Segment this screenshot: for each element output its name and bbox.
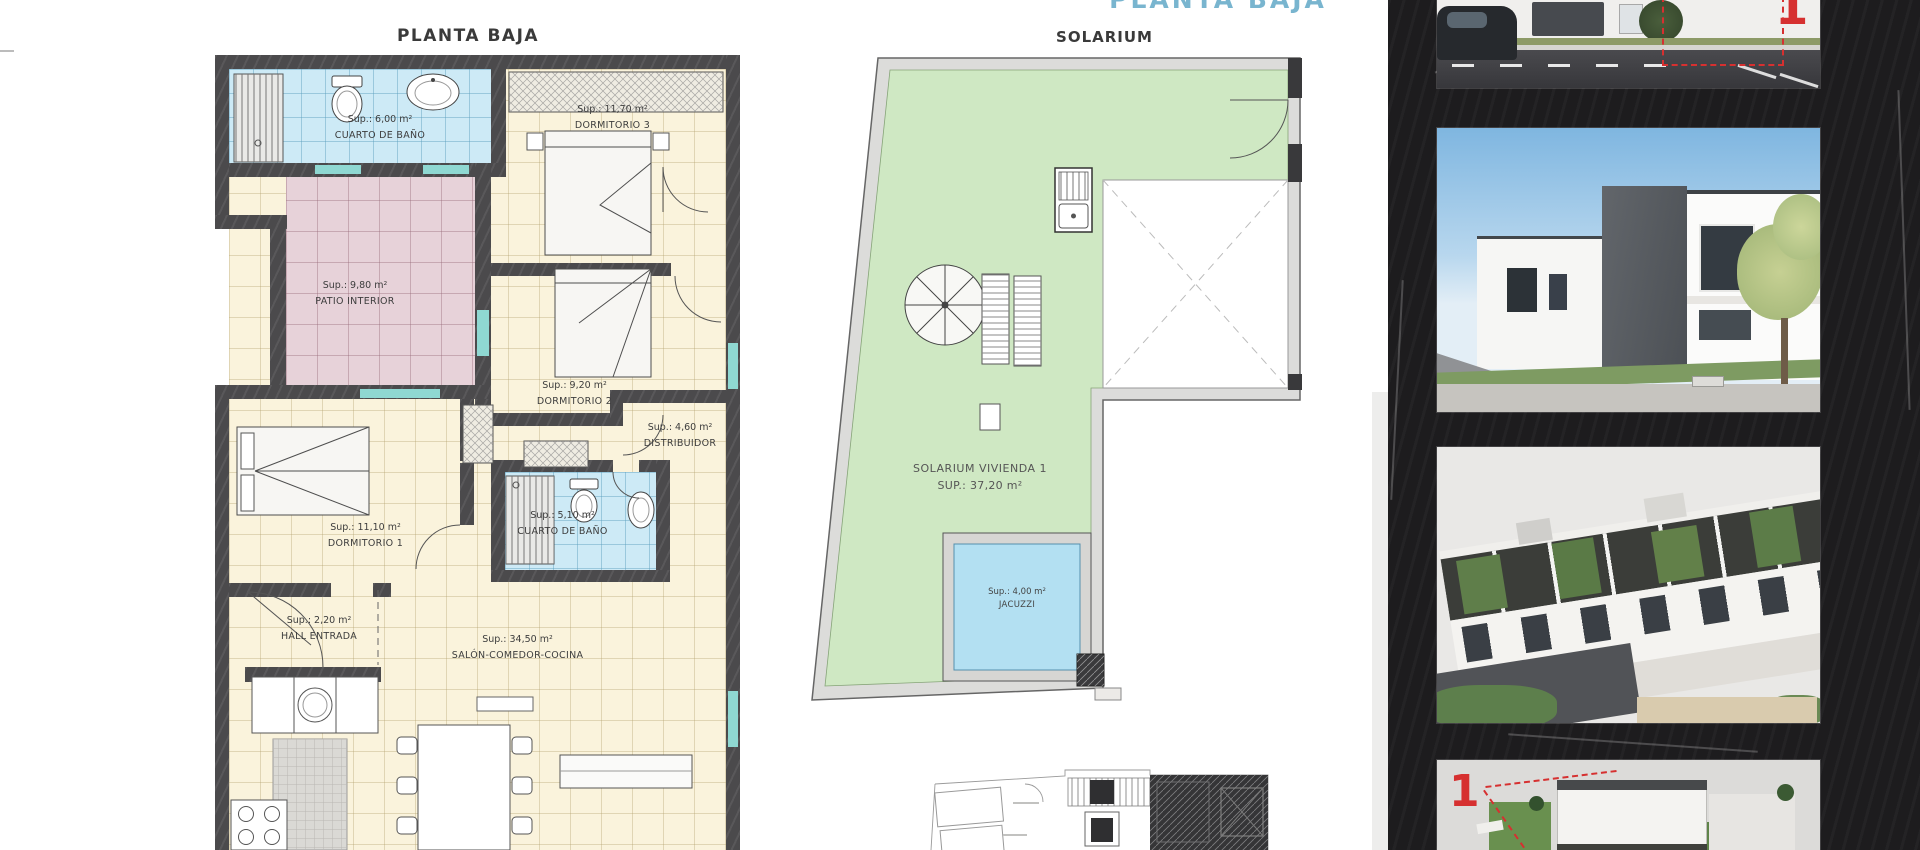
frame-scratch: [1508, 733, 1758, 752]
roof-edge: [1557, 780, 1707, 790]
page-edge-mark: [0, 50, 14, 52]
photo-street-facade[interactable]: 1: [1437, 0, 1820, 88]
frame-scratch: [1897, 90, 1910, 410]
room-label-bano-inferior: Sup.: 5,10 m² CUARTO DE BAÑO: [500, 511, 625, 536]
roof-shadow: [1557, 844, 1707, 850]
roof-garden: [1456, 554, 1508, 614]
roof-garden: [1552, 537, 1602, 599]
solarium-drawing: [800, 50, 1320, 720]
roof-void: [1103, 180, 1288, 388]
shower-icon: [234, 74, 283, 162]
planta-baja-title: PLANTA BAJA: [348, 26, 588, 46]
photo-sidebar: 1: [1388, 0, 1920, 850]
outdoor-sink-icon: [1055, 168, 1092, 232]
solarium-label: SOLARIUM VIVIENDA 1 SUP.: 37,20 m²: [885, 463, 1075, 491]
sidewalk: [1437, 384, 1820, 412]
photo-edge-strip: [1372, 392, 1388, 850]
photo-site-aerial[interactable]: 1: [1437, 760, 1820, 850]
stone-path: [1637, 697, 1817, 723]
side-table-icon: [980, 404, 1000, 430]
sofa-icon: [560, 755, 692, 788]
roof-garden: [1651, 525, 1705, 584]
room-label-dormitorio3: Sup.: 11,70 m² DORMITORIO 3: [545, 105, 680, 130]
bench: [1692, 376, 1724, 387]
room-label-salon: Sup.: 34,50 m² SALÓN-COMEDOR-COCINA: [415, 635, 620, 660]
window: [1699, 310, 1751, 340]
step: [1095, 688, 1121, 700]
sun-lounger-icon: [982, 274, 1009, 364]
hatched-block: [1150, 775, 1268, 850]
room-label-bano-superior: Sup.: 6,00 m² CUARTO DE BAÑO: [310, 115, 450, 140]
unit-number-badge: 1: [1775, 0, 1808, 32]
roof-wing: [1709, 794, 1795, 850]
room-label-distribuidor: Sup.: 4,60 m² DISTRIBUIDOR: [625, 423, 735, 448]
solarium-floorplan: SOLARIUM VIVIENDA 1 SUP.: 37,20 m² Sup.:…: [800, 50, 1320, 720]
sideboard-icon: [477, 697, 533, 711]
solarium-title: SOLARIUM: [982, 28, 1227, 46]
bed-icon: [527, 131, 669, 255]
washer-icon: [252, 677, 378, 733]
bed-icon: [237, 427, 369, 515]
key-plan-drawing: [925, 762, 1280, 850]
jacuzzi-label: Sup.: 4,00 m² JACUZZI: [953, 588, 1081, 609]
room-label-dormitorio2: Sup.: 9,20 m² DORMITORIO 2: [502, 381, 647, 406]
plant: [1777, 784, 1794, 801]
wardrobe-icon: [524, 441, 588, 467]
door-arc: [675, 276, 721, 322]
photo-rooftop-aerial[interactable]: [1437, 447, 1820, 723]
unit-number-badge: 1: [1449, 770, 1480, 814]
frame-scratch: [1390, 280, 1404, 500]
lane-dashes: [1452, 64, 1682, 67]
service-hatch: [1077, 654, 1104, 686]
key-plan-rooms: [935, 787, 1007, 850]
greenery: [1437, 685, 1557, 723]
room-label-patio: Sup.: 9,80 m² PATIO INTERIOR: [285, 281, 425, 306]
sun-lounger-icon: [1014, 276, 1041, 366]
page: { "page": { "top_partial_title": "PLANTA…: [0, 0, 1920, 850]
photo-building-exterior[interactable]: [1437, 128, 1820, 412]
page-title-partial: PLANTA BAJA: [1078, 0, 1358, 14]
key-plan: [925, 762, 1280, 850]
wardrobe-icon: [463, 405, 493, 463]
unit-outline-dashed: [1662, 0, 1784, 66]
window: [1549, 274, 1567, 310]
room-label-dormitorio1: Sup.: 11,10 m² DORMITORIO 1: [293, 523, 438, 548]
dark-panel: [1602, 186, 1687, 376]
door-arc: [663, 167, 708, 212]
tree-foliage: [1773, 194, 1820, 260]
garage-door: [1532, 2, 1604, 36]
window: [1507, 268, 1537, 312]
parasol-icon: [905, 265, 985, 345]
tree-trunk: [1781, 318, 1788, 384]
dining-table-icon: [397, 725, 532, 850]
room-label-hall: Sup.: 2,20 m² HALL ENTRADA: [253, 616, 385, 641]
bed-icon: [555, 269, 651, 377]
stairs-icon: [1068, 778, 1150, 806]
building-far-wing: [1477, 236, 1607, 369]
car-window: [1447, 12, 1487, 28]
stove-icon: [231, 800, 287, 850]
sink-icon: [407, 74, 459, 110]
key-plan-text-marks: [1003, 802, 1039, 836]
roof-garden: [1749, 506, 1801, 568]
plant: [1529, 796, 1544, 811]
planta-baja-floorplan: Sup.: 6,00 m² CUARTO DE BAÑO Sup.: 11,70…: [215, 55, 740, 850]
roof-block: [1557, 786, 1707, 850]
floorplan-furniture-layer: [215, 55, 740, 850]
lift-icon: [1085, 812, 1119, 846]
